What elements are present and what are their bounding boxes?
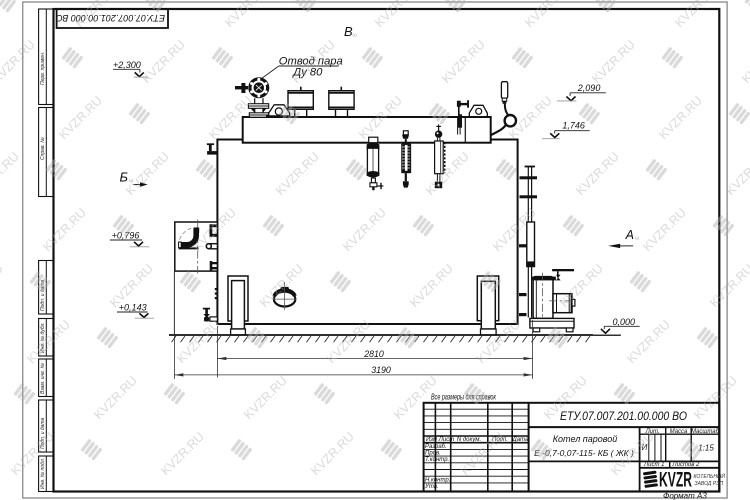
svg-text:Масса: Масса: [670, 429, 688, 435]
svg-text:Взам. инв. №: Взам. инв. №: [40, 362, 46, 394]
svg-text:KVZR: KVZR: [659, 469, 692, 492]
svg-text:Б: Б: [120, 170, 129, 185]
svg-text:А: А: [625, 228, 634, 242]
svg-text:Разраб.: Разраб.: [425, 444, 447, 450]
svg-text:КОТЕЛЬНЫЙ: КОТЕЛЬНЫЙ: [694, 472, 726, 480]
svg-text:Листов 2: Листов 2: [672, 462, 701, 468]
svg-text:Дата: Дата: [511, 437, 528, 443]
svg-text:ЗАВОД РЭП: ЗАВОД РЭП: [695, 481, 724, 487]
svg-text:ЕТУ.07.007.201.00.000 ВО: ЕТУ.07.007.201.00.000 ВО: [56, 13, 165, 23]
svg-text:Пров.: Пров.: [425, 451, 441, 457]
svg-text:Лист 1: Лист 1: [643, 462, 664, 468]
svg-text:0,000: 0,000: [613, 317, 636, 327]
svg-text:Утв.: Утв.: [424, 484, 439, 490]
svg-text:ω: ω: [635, 236, 640, 242]
svg-text:Т.контр.: Т.контр.: [425, 457, 449, 463]
svg-text:ω: ω: [353, 33, 358, 39]
svg-text:3190: 3190: [371, 365, 391, 375]
svg-text:Все размеры для справок: Все размеры для справок: [431, 392, 497, 402]
svg-text:Н.контр.: Н.контр.: [425, 477, 450, 483]
svg-text:ЕТУ.07.007.201.00.000 ВО: ЕТУ.07.007.201.00.000 ВО: [560, 411, 687, 423]
svg-text:1,746: 1,746: [562, 121, 585, 131]
svg-text:Справ. №: Справ. №: [40, 137, 46, 160]
svg-text:+2,300: +2,300: [113, 60, 141, 70]
svg-text:2810: 2810: [363, 349, 384, 359]
svg-text:N докум.: N докум.: [457, 437, 481, 443]
svg-text:Перв. примен.: Перв. примен.: [40, 52, 46, 85]
svg-text:Масштаб: Масштаб: [691, 429, 720, 435]
svg-text:Формат А3: Формат А3: [663, 492, 707, 500]
svg-text:Котел паровой: Котел паровой: [553, 434, 618, 444]
svg-text:Инв. № подл.: Инв. № подл.: [40, 458, 46, 489]
svg-text:Изм Лист: Изм Лист: [426, 437, 454, 443]
